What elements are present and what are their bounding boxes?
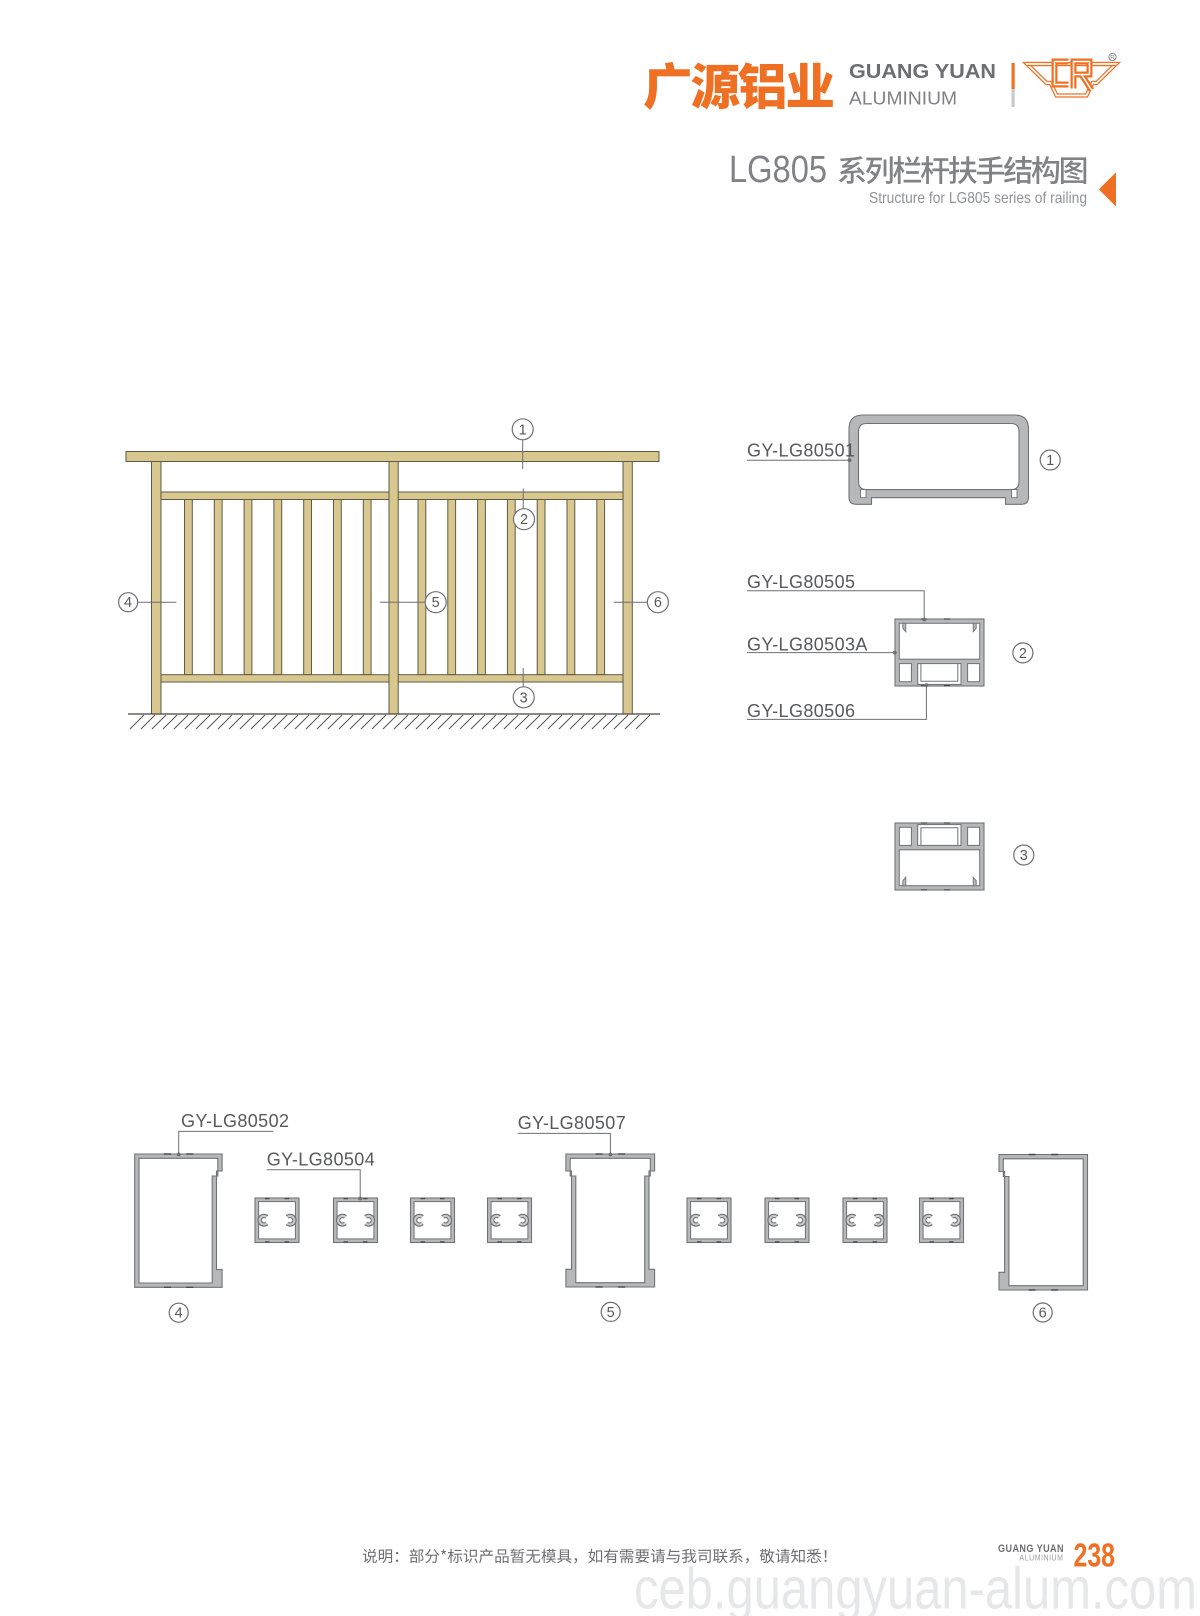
svg-text:3: 3 <box>1020 848 1028 864</box>
svg-text:Structure for LG805 series of: Structure for LG805 series of railing <box>869 190 1087 207</box>
svg-text:1: 1 <box>1046 453 1054 469</box>
svg-text:ALUMINIUM: ALUMINIUM <box>849 88 957 109</box>
svg-text:3: 3 <box>520 690 528 706</box>
svg-text:1: 1 <box>519 422 527 438</box>
svg-text:5: 5 <box>607 1305 615 1321</box>
svg-text:GY-LG80505: GY-LG80505 <box>747 572 855 592</box>
svg-text:2: 2 <box>1019 646 1027 662</box>
svg-text:GY-LG80502: GY-LG80502 <box>181 1111 289 1131</box>
svg-text:GY-LG80501: GY-LG80501 <box>747 441 855 461</box>
svg-text:6: 6 <box>654 595 662 611</box>
svg-text:GY-LG80507: GY-LG80507 <box>518 1113 626 1133</box>
svg-text:LG805: LG805 <box>729 149 827 191</box>
svg-text:4: 4 <box>124 595 132 611</box>
svg-text:GY-LG80504: GY-LG80504 <box>267 1150 375 1170</box>
svg-text:R: R <box>1110 55 1115 62</box>
svg-text:4: 4 <box>175 1306 183 1322</box>
svg-text:ceb.guangyuan-alum.com: ceb.guangyuan-alum.com <box>634 1557 1197 1616</box>
svg-text:GY-LG80506: GY-LG80506 <box>747 701 855 721</box>
svg-text:5: 5 <box>432 595 440 611</box>
svg-text:6: 6 <box>1039 1306 1047 1322</box>
svg-text:GUANG YUAN: GUANG YUAN <box>849 61 996 83</box>
svg-text:2: 2 <box>520 512 528 528</box>
svg-text:GY-LG80503A: GY-LG80503A <box>747 635 868 655</box>
